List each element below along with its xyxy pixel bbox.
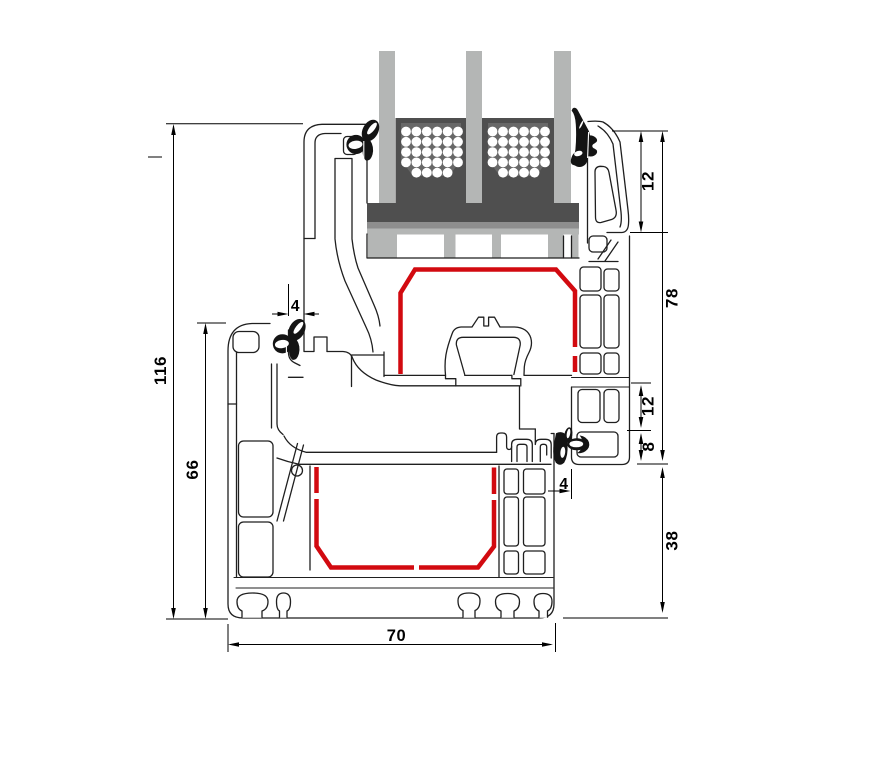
svg-text:4: 4 (291, 298, 300, 315)
svg-text:116: 116 (151, 356, 170, 385)
svg-text:66: 66 (183, 459, 202, 479)
svg-text:12: 12 (639, 396, 658, 416)
svg-text:4: 4 (559, 476, 568, 493)
svg-text:38: 38 (663, 530, 682, 550)
svg-text:12: 12 (639, 171, 658, 191)
svg-text:8: 8 (639, 441, 658, 451)
svg-text:78: 78 (663, 288, 682, 308)
svg-text:70: 70 (387, 627, 407, 645)
